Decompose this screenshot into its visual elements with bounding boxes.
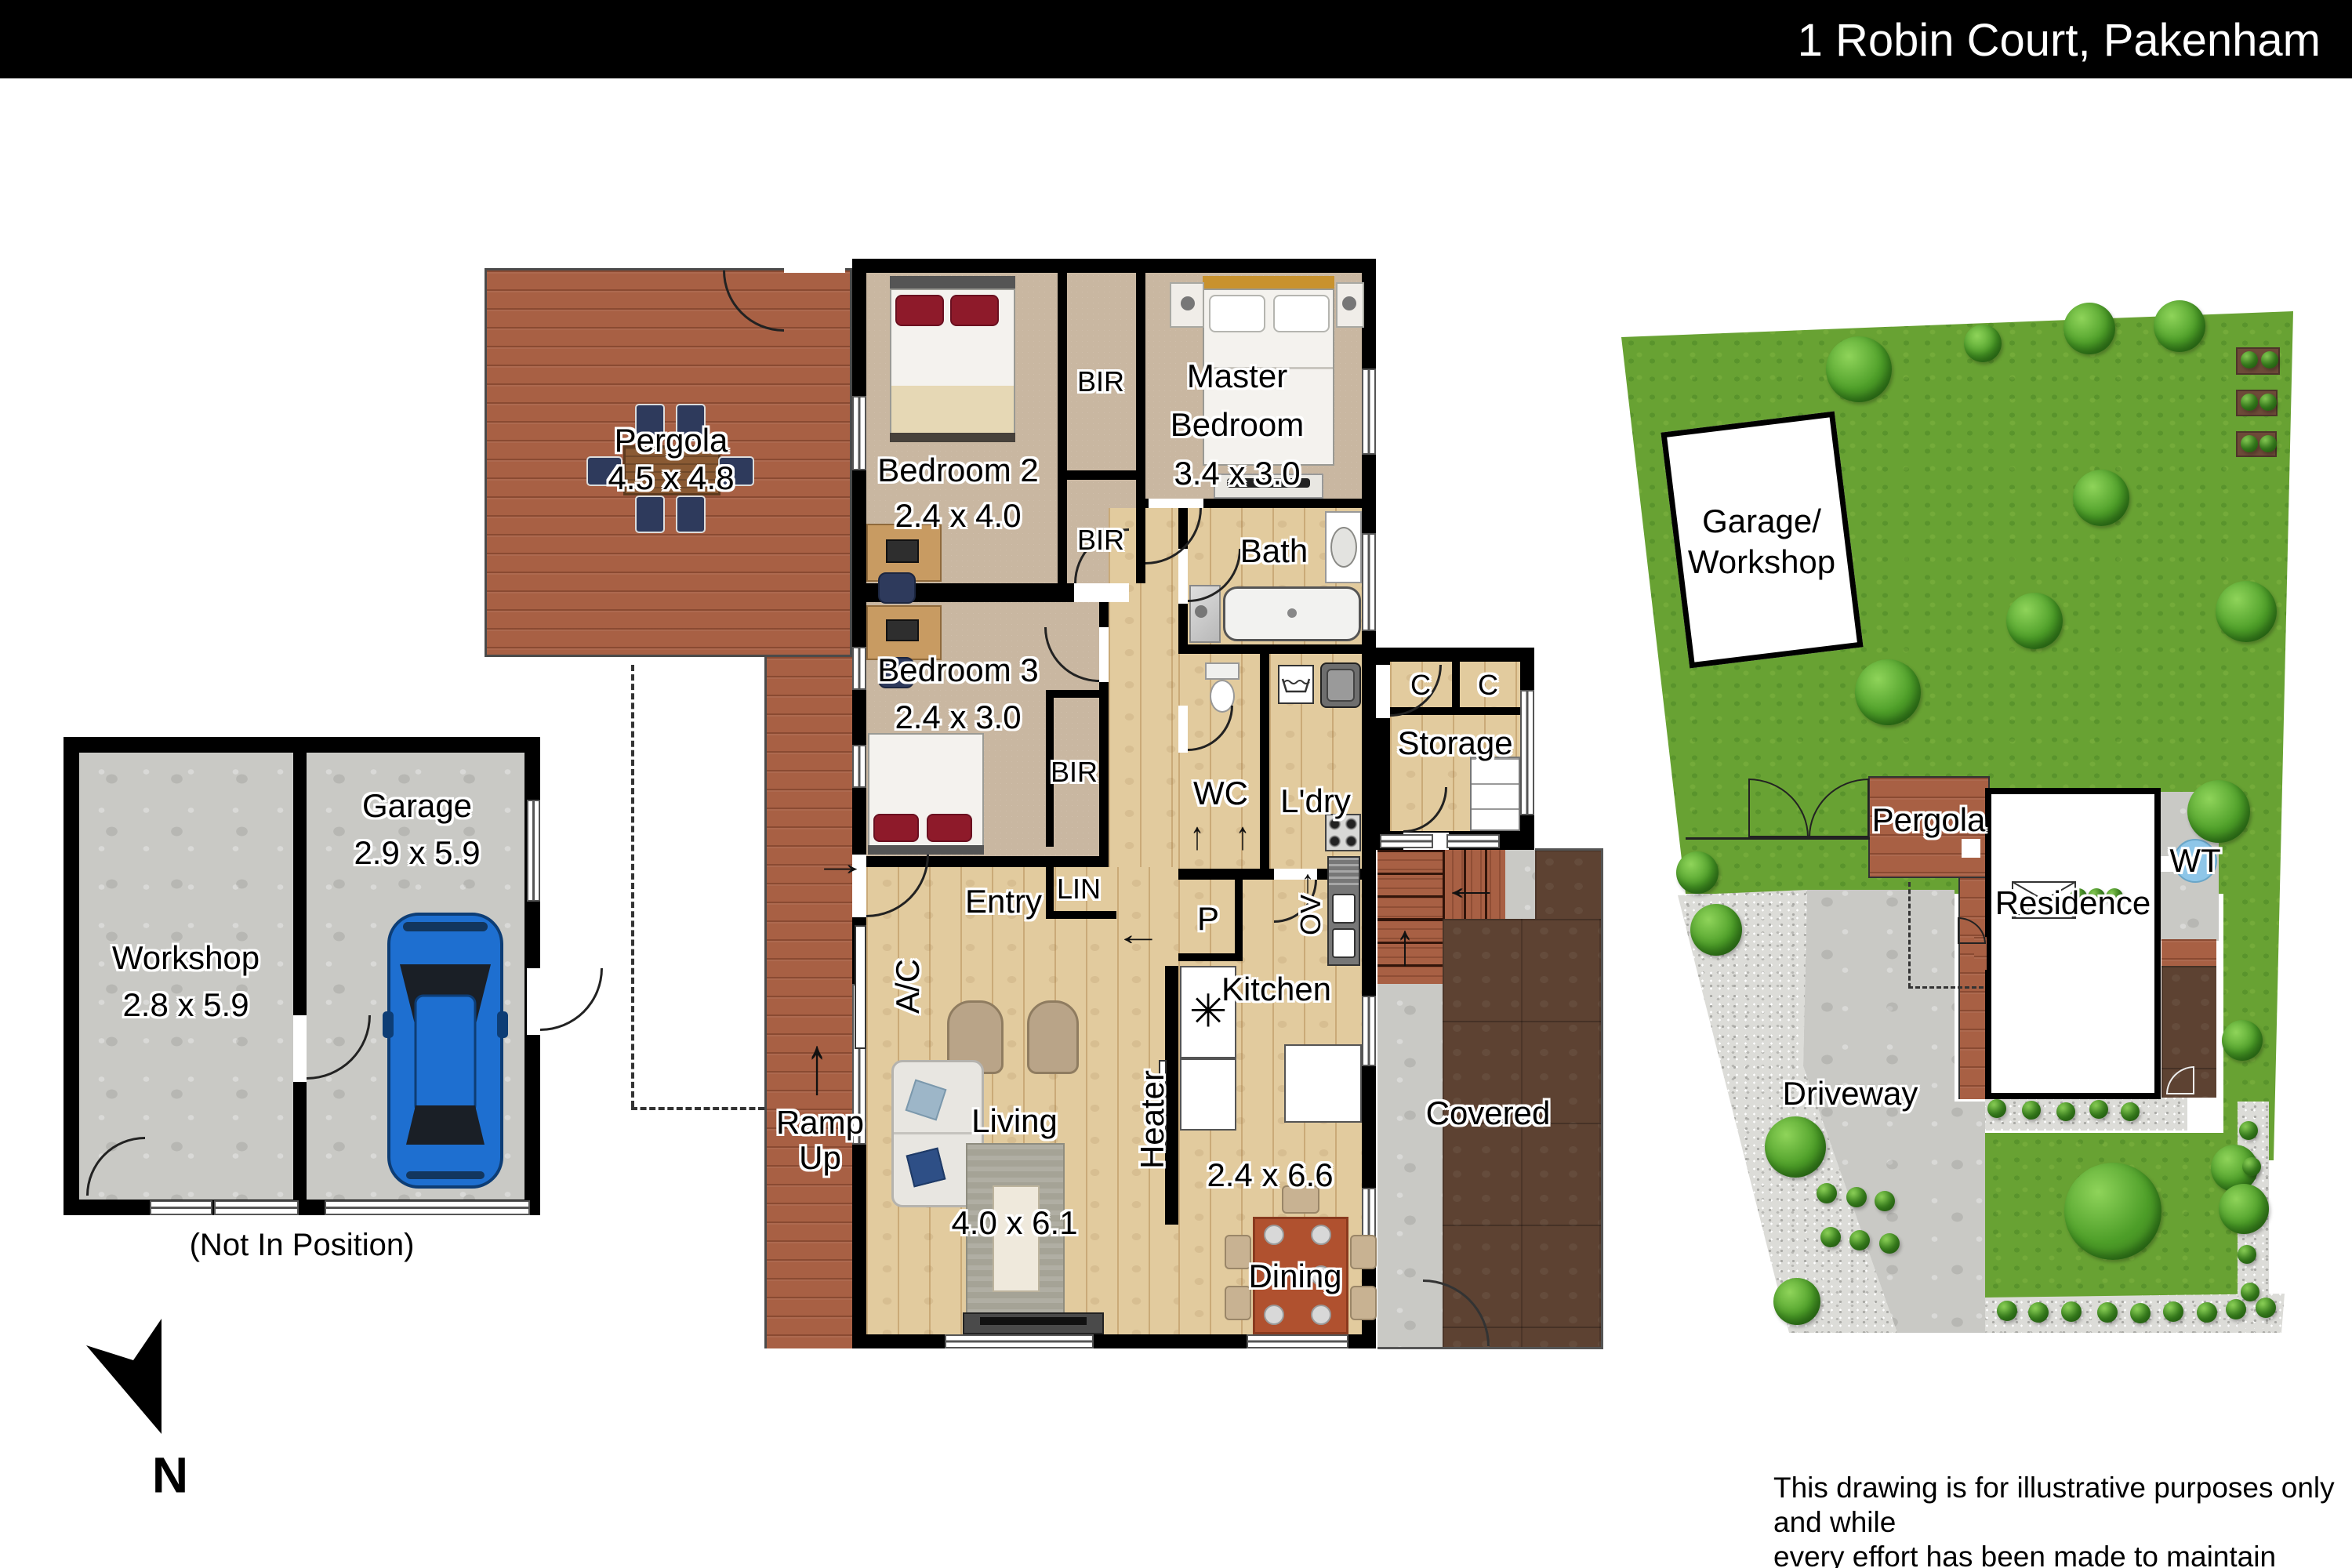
wc-arrow-icon: ↑ bbox=[1236, 816, 1250, 855]
tree bbox=[2154, 300, 2205, 352]
dining-chair bbox=[1225, 1235, 1251, 1269]
garage-connector-dash-h bbox=[631, 1107, 764, 1110]
wall-pantry-right bbox=[1235, 880, 1243, 961]
dining-chair bbox=[1350, 1235, 1377, 1269]
master-dims: 3.4 x 3.0 bbox=[1174, 456, 1300, 491]
bath-window bbox=[1362, 533, 1376, 631]
pergola-dims: 4.5 x 4.8 bbox=[608, 461, 734, 495]
ac-label: A/C bbox=[891, 959, 925, 1014]
bush bbox=[2056, 1102, 2075, 1121]
site-courtyard-step bbox=[2161, 939, 2216, 966]
kitchen-counter-left bbox=[1180, 1058, 1236, 1131]
site-plan: Driveway Garage/ Workshop Pergola Reside… bbox=[1599, 298, 2352, 1427]
ramp-deck-strip bbox=[764, 657, 852, 1348]
site-dash-h bbox=[1908, 986, 1984, 989]
storage-label: Storage bbox=[1397, 726, 1512, 760]
bush bbox=[2261, 351, 2278, 368]
bedroom2-chair bbox=[878, 572, 916, 604]
bir-label-c: BIR bbox=[1051, 757, 1098, 787]
bir-label-b: BIR bbox=[1077, 525, 1124, 555]
bush bbox=[2061, 1301, 2082, 1322]
bedroom2-laptop bbox=[886, 539, 919, 563]
kitchen-dims: 2.4 x 6.6 bbox=[1207, 1158, 1333, 1192]
ramp-label-1: Ramp bbox=[776, 1105, 864, 1140]
floorplan-page: 1 Robin Court, Pakenham Workshop 2.8 x 5… bbox=[0, 0, 2352, 1568]
bed2-headboard bbox=[890, 276, 1015, 289]
wc-label: WC bbox=[1193, 776, 1248, 811]
master-lamp bbox=[1342, 296, 1356, 310]
tree bbox=[1855, 659, 1921, 725]
bush bbox=[1849, 1230, 1870, 1250]
disclaimer: This drawing is for illustrative purpose… bbox=[1773, 1471, 2338, 1568]
master-window bbox=[1362, 368, 1376, 455]
deck-right-arrow-icon: → bbox=[813, 847, 868, 881]
dining-plate bbox=[1311, 1305, 1331, 1325]
bedroom3-laptop bbox=[886, 619, 919, 641]
master-headboard bbox=[1203, 276, 1334, 289]
bush bbox=[2241, 394, 2258, 411]
bush bbox=[2130, 1303, 2151, 1323]
living-bottom-window bbox=[945, 1334, 1094, 1348]
master-lamp bbox=[1181, 296, 1195, 310]
bush bbox=[1846, 1187, 1867, 1207]
oven-label: OV bbox=[1296, 895, 1326, 935]
bush bbox=[2226, 1299, 2246, 1319]
bush bbox=[2241, 351, 2258, 368]
wc-arrow-icon: ↑ bbox=[1190, 816, 1204, 855]
laundry-label: L'dry bbox=[1280, 784, 1351, 818]
workshop-roller-door-1 bbox=[150, 1200, 212, 1215]
laundry-sink-basin bbox=[1327, 669, 1355, 702]
bedroom2-window bbox=[852, 396, 866, 470]
dining-plate bbox=[1264, 1225, 1284, 1245]
pergola-label: Pergola bbox=[615, 423, 728, 458]
disclaimer-line-2: every effort has been made to maintain a… bbox=[1773, 1540, 2338, 1568]
disclaimer-line-1: This drawing is for illustrative purpose… bbox=[1773, 1471, 2338, 1540]
driveway-label: Driveway bbox=[1783, 1076, 1918, 1111]
bed2-pillow bbox=[895, 295, 944, 326]
stair-up-arrow-icon: ↑ bbox=[1396, 916, 1414, 976]
site-walkway bbox=[1985, 1098, 2187, 1131]
armchair bbox=[1027, 1000, 1079, 1074]
pergola-gate-gap bbox=[784, 267, 845, 273]
master-door-gap bbox=[1149, 499, 1203, 508]
ramp-label-2: Up bbox=[799, 1141, 841, 1175]
dining-bottom-window bbox=[1247, 1334, 1348, 1348]
kitchen-window-1 bbox=[1362, 996, 1376, 1066]
outdoor-chair bbox=[635, 495, 665, 533]
covered-label: Covered bbox=[1426, 1096, 1551, 1131]
site-dash-v bbox=[1908, 882, 1911, 988]
bed2-blanket bbox=[891, 386, 1014, 433]
bush bbox=[2121, 1102, 2140, 1121]
dining-chair bbox=[1350, 1286, 1377, 1320]
wc-door-gap bbox=[1178, 706, 1188, 753]
site-garage-workshop bbox=[1661, 412, 1863, 669]
bush bbox=[1997, 1301, 2017, 1321]
tree bbox=[2064, 1163, 2161, 1260]
site-residence bbox=[1985, 788, 2161, 1099]
tree bbox=[2063, 303, 2115, 354]
ac-unit bbox=[855, 925, 866, 1049]
north-arrow-icon bbox=[78, 1309, 204, 1450]
bedroom3-label: Bedroom 3 bbox=[877, 653, 1038, 688]
master-pillow bbox=[1209, 295, 1265, 332]
entry-label: Entry bbox=[965, 884, 1042, 919]
cupboard-label: C bbox=[1410, 670, 1431, 700]
page-title: 1 Robin Court, Pakenham bbox=[1798, 0, 2321, 78]
garage-label: Garage bbox=[362, 789, 472, 823]
bedroom3-window-2 bbox=[852, 745, 866, 788]
bush bbox=[1817, 1183, 1837, 1203]
wall-bath-bottom bbox=[1178, 644, 1376, 654]
covered-deck-upper-right bbox=[1535, 850, 1601, 919]
covered-outline-top bbox=[1535, 848, 1603, 851]
bush bbox=[2239, 1121, 2258, 1140]
tree bbox=[1765, 1116, 1826, 1178]
bush bbox=[2238, 1245, 2256, 1264]
house-wall-top bbox=[852, 259, 1376, 273]
bush bbox=[2241, 1283, 2259, 1301]
bush bbox=[1879, 1233, 1900, 1254]
entry-left-arrow-icon: ← bbox=[1115, 919, 1162, 950]
living-dims: 4.0 x 6.1 bbox=[951, 1206, 1077, 1240]
wing-window-1 bbox=[1380, 834, 1433, 848]
dining-chair bbox=[1225, 1286, 1251, 1320]
stair-flight-upper bbox=[1377, 850, 1443, 919]
pantry-label: P bbox=[1197, 902, 1219, 936]
wing-window-2 bbox=[1446, 834, 1500, 848]
wall-bir-split bbox=[1067, 470, 1136, 480]
site-garage-workshop-label-2: Workshop bbox=[1688, 545, 1835, 579]
tree bbox=[1676, 851, 1719, 894]
tree bbox=[1690, 904, 1742, 956]
heater-label: Heater bbox=[1135, 1070, 1170, 1169]
bed3-pillow bbox=[927, 814, 972, 842]
stair-left-arrow-icon: ← bbox=[1439, 869, 1503, 906]
bush bbox=[2089, 1100, 2108, 1119]
kitchen-sink-basin bbox=[1332, 928, 1356, 958]
bush bbox=[2097, 1302, 2118, 1323]
bush bbox=[1987, 1099, 2006, 1118]
car-top-view bbox=[383, 909, 508, 1192]
shower-head bbox=[1195, 605, 1207, 618]
workshop-roller-door-2 bbox=[214, 1200, 299, 1215]
master-label-1: Master bbox=[1187, 359, 1287, 394]
workshop-label: Workshop bbox=[112, 941, 260, 975]
title-bar: 1 Robin Court, Pakenham bbox=[0, 0, 2352, 78]
sofa-cushion-line bbox=[894, 1132, 982, 1134]
toilet-tank bbox=[1205, 662, 1240, 680]
covered-deck-main bbox=[1443, 919, 1601, 1348]
bush bbox=[2256, 1298, 2276, 1318]
site-pergola-label: Pergola bbox=[1872, 803, 1986, 837]
stair-landing bbox=[1505, 850, 1535, 919]
tree bbox=[2216, 581, 2277, 642]
wall-bir3-top bbox=[1046, 690, 1101, 698]
laundry-trough-icon bbox=[1281, 676, 1311, 695]
garage-window bbox=[527, 800, 540, 902]
kitchen-counter-right bbox=[1284, 1044, 1362, 1123]
storage-window bbox=[1520, 690, 1534, 815]
dining-plate bbox=[1264, 1305, 1284, 1325]
wall-lin-bottom bbox=[1046, 911, 1116, 919]
bedroom2-dims: 2.4 x 4.0 bbox=[895, 499, 1021, 533]
wall-bed2-bir bbox=[1058, 273, 1067, 583]
bedroom3-window-1 bbox=[852, 647, 866, 690]
north-label: N bbox=[152, 1449, 188, 1501]
kitchen-label: Kitchen bbox=[1221, 972, 1331, 1007]
bush bbox=[1875, 1191, 1895, 1211]
bedroom3-door-gap bbox=[1099, 627, 1109, 682]
kitchen-sink-basin bbox=[1332, 894, 1356, 924]
paver bbox=[1962, 839, 1980, 858]
bathtub-drain bbox=[1287, 608, 1297, 618]
garage-side-door-gap bbox=[527, 968, 540, 1035]
bush bbox=[2241, 435, 2258, 452]
cooktop bbox=[1325, 814, 1361, 851]
bush bbox=[2028, 1302, 2049, 1323]
wall-bir-master bbox=[1136, 273, 1145, 583]
not-in-position-note: (Not In Position) bbox=[190, 1229, 415, 1261]
garage-roller-door bbox=[325, 1200, 530, 1215]
bath-door-gap bbox=[1178, 549, 1188, 604]
tree bbox=[2219, 1184, 2269, 1234]
bed3-pillow bbox=[873, 814, 919, 842]
bed2-pillow bbox=[950, 295, 999, 326]
bush bbox=[2259, 435, 2277, 452]
bedroom2-door-gap bbox=[1074, 583, 1129, 602]
bush bbox=[2259, 394, 2277, 411]
tree bbox=[2006, 593, 2063, 649]
tree bbox=[2187, 780, 2250, 843]
lin-label: LIN bbox=[1057, 874, 1101, 904]
wall-pantry-bottom bbox=[1178, 953, 1243, 961]
bush bbox=[2163, 1301, 2183, 1322]
oven-arrow-icon: ↑ bbox=[1301, 865, 1314, 898]
storage-stair-notch bbox=[1470, 757, 1520, 831]
garage-internal-door-gap bbox=[293, 1015, 307, 1082]
bath-sink bbox=[1330, 527, 1357, 568]
bush bbox=[2022, 1101, 2041, 1120]
site-residence-label: Residence bbox=[1995, 886, 2151, 920]
bath-label: Bath bbox=[1240, 534, 1308, 568]
garage-connector-dash-v bbox=[631, 665, 634, 1107]
storage-door-gap bbox=[1376, 665, 1390, 718]
tree bbox=[1826, 336, 1892, 402]
workshop-floor bbox=[79, 753, 293, 1200]
covered-outline-right bbox=[1601, 850, 1603, 1348]
wall-wc-ldry bbox=[1260, 654, 1269, 869]
outdoor-chair bbox=[676, 495, 706, 533]
dining-plate bbox=[1311, 1225, 1331, 1245]
living-tv bbox=[980, 1317, 1087, 1325]
bedroom2-label: Bedroom 2 bbox=[877, 453, 1038, 488]
bush bbox=[1820, 1227, 1841, 1247]
bush bbox=[2242, 1157, 2261, 1176]
master-label-2: Bedroom bbox=[1171, 408, 1304, 442]
site-garage-workshop-label-1: Garage/ bbox=[1702, 504, 1821, 539]
garage-dims: 2.9 x 5.9 bbox=[354, 836, 480, 870]
tree bbox=[1964, 325, 2002, 362]
workshop-dims: 2.8 x 5.9 bbox=[122, 988, 249, 1022]
covered-outline-bottom bbox=[1377, 1347, 1603, 1349]
bir-label-a: BIR bbox=[1077, 367, 1124, 397]
cupboard-label: C bbox=[1478, 670, 1498, 700]
dining-label: Dining bbox=[1248, 1259, 1341, 1294]
bedroom3-dims: 2.4 x 3.0 bbox=[895, 700, 1021, 735]
ramp-up-arrow-icon: ↑ bbox=[806, 1023, 828, 1106]
tree bbox=[2222, 1020, 2263, 1061]
tree bbox=[2073, 470, 2129, 526]
bed2-footboard bbox=[890, 433, 1015, 442]
tree bbox=[1773, 1278, 1820, 1325]
living-label: Living bbox=[971, 1104, 1058, 1138]
bed3-headboard bbox=[868, 845, 984, 855]
master-pillow bbox=[1273, 295, 1330, 332]
water-tank-label: WT bbox=[2169, 844, 2220, 878]
bush bbox=[2197, 1302, 2217, 1323]
site-fence-line bbox=[1686, 837, 1870, 840]
garage-side-door-arc bbox=[540, 968, 603, 1031]
